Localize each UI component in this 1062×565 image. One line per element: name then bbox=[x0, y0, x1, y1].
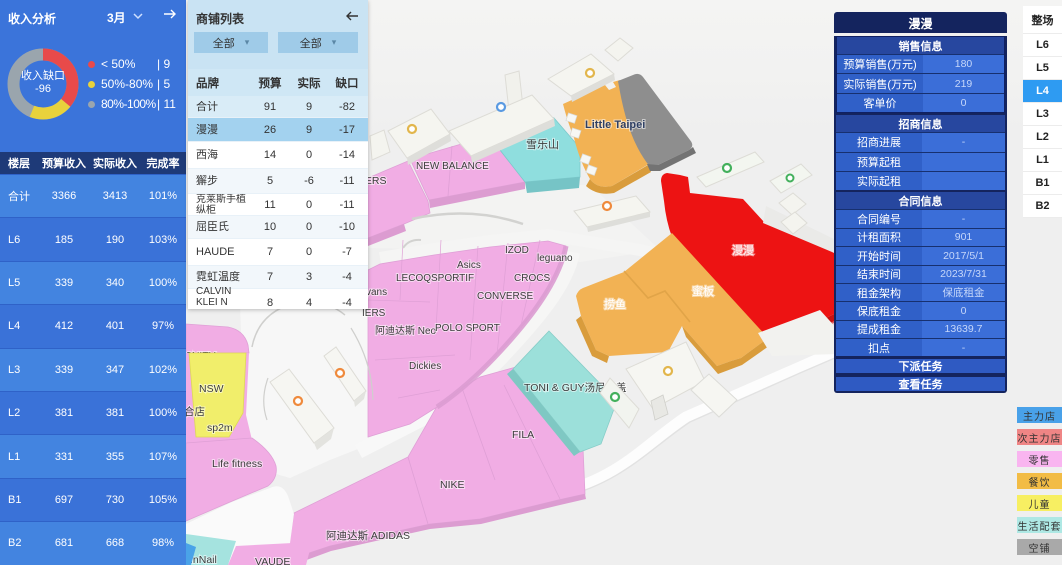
svg-text:LECOQSPORTIF: LECOQSPORTIF bbox=[396, 273, 474, 284]
svg-text:FILA: FILA bbox=[512, 429, 534, 441]
svg-text:IZOD: IZOD bbox=[505, 245, 529, 256]
svg-text:Little Taipei: Little Taipei bbox=[585, 119, 645, 131]
svg-text:Asics: Asics bbox=[457, 260, 481, 271]
svg-text:NEW BALANCE: NEW BALANCE bbox=[416, 161, 489, 172]
svg-text:vans: vans bbox=[366, 287, 387, 298]
svg-text:蜜板: 蜜板 bbox=[692, 284, 714, 298]
svg-text:POLO SPORT: POLO SPORT bbox=[435, 323, 500, 334]
svg-text:捞鱼: 捞鱼 bbox=[604, 297, 626, 311]
svg-text:NSW: NSW bbox=[199, 383, 224, 395]
svg-text:leguano: leguano bbox=[537, 253, 573, 264]
svg-text:CONVERSE: CONVERSE bbox=[477, 291, 533, 302]
svg-text:漫漫: 漫漫 bbox=[732, 243, 754, 257]
svg-text:VAUDE: VAUDE bbox=[255, 556, 290, 565]
svg-text:合店: 合店 bbox=[184, 405, 205, 418]
svg-text:Dickies: Dickies bbox=[409, 361, 441, 372]
svg-text:阿迪达斯 Neo: 阿迪达斯 Neo bbox=[375, 324, 437, 337]
svg-text:雪乐山: 雪乐山 bbox=[526, 138, 559, 151]
svg-text:IERS: IERS bbox=[362, 308, 386, 319]
svg-text:sp2m: sp2m bbox=[207, 422, 233, 434]
svg-text:阿迪达斯 ADIDAS: 阿迪达斯 ADIDAS bbox=[326, 529, 410, 542]
svg-text:Life fitness: Life fitness bbox=[212, 458, 262, 470]
svg-text:NIKE: NIKE bbox=[440, 479, 465, 491]
svg-text:InNail: InNail bbox=[190, 554, 217, 565]
svg-text:CROCS: CROCS bbox=[514, 273, 550, 284]
